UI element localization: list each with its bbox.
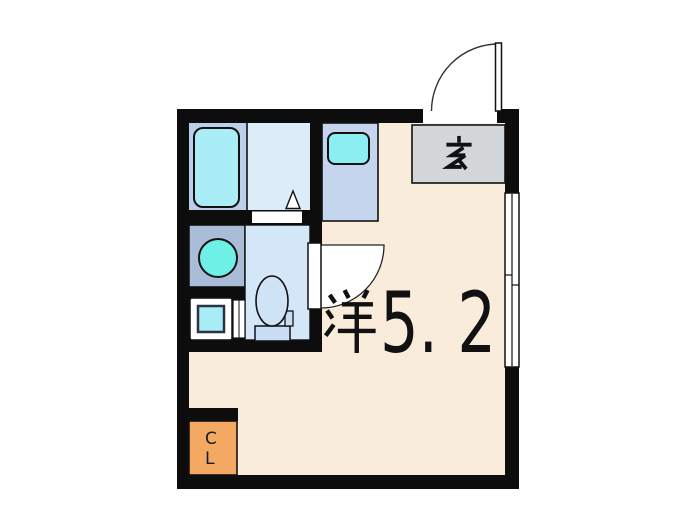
kitchen-sink-icon <box>328 133 369 164</box>
wall-right-upper <box>505 109 519 193</box>
wash-basin-icon <box>199 239 237 277</box>
floorplan-canvas: C L 5. 2 <box>0 0 700 525</box>
toilet-tank <box>255 326 290 341</box>
entrance-door-leaf <box>496 43 502 111</box>
wall-bottom <box>177 475 519 489</box>
floorplan-drawing: C L 5. 2 <box>0 0 700 525</box>
washing-machine-icon <box>198 306 224 332</box>
toilet-bowl-icon <box>256 276 288 326</box>
bath-door-opening <box>252 212 302 224</box>
bathtub-icon <box>194 128 239 207</box>
wall-right-lower <box>505 367 519 489</box>
wall-closet-top <box>177 408 238 421</box>
wall-top-left <box>177 109 423 123</box>
bathroom-floor <box>247 123 310 210</box>
wall-toilet-bottom <box>245 340 322 352</box>
closet-label-line2: L <box>205 449 215 469</box>
room-door-leaf <box>308 243 321 309</box>
wall-left <box>177 109 189 489</box>
main-room-size-text: 5. 2 <box>380 274 496 372</box>
sliding-window-icon <box>505 193 519 367</box>
closet-label-line1: C <box>205 429 217 449</box>
